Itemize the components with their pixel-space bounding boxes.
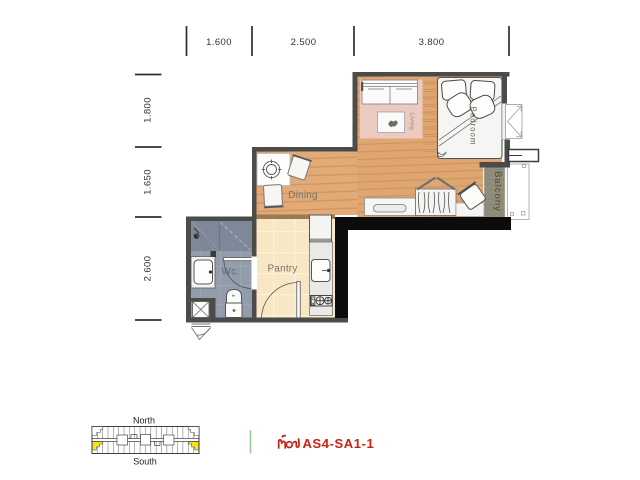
svg-text:Living: Living <box>409 113 415 130</box>
svg-text:3.800: 3.800 <box>419 37 445 48</box>
svg-text:Balcony: Balcony <box>492 171 503 212</box>
svg-text:1.600: 1.600 <box>206 37 232 48</box>
svg-text:AS4-SA1-1: AS4-SA1-1 <box>303 436 375 451</box>
svg-text:1.800: 1.800 <box>143 97 154 123</box>
svg-text:2.600: 2.600 <box>143 256 154 282</box>
svg-text:Wc.: Wc. <box>222 267 240 278</box>
svg-text:2.500: 2.500 <box>291 37 317 48</box>
svg-text:North: North <box>133 416 155 426</box>
svg-text:Dining: Dining <box>288 190 318 201</box>
svg-text:Pantry: Pantry <box>267 264 297 275</box>
svg-text:South: South <box>133 457 157 467</box>
svg-text:Bedroom: Bedroom <box>469 107 478 146</box>
svg-text:1.650: 1.650 <box>143 169 154 195</box>
